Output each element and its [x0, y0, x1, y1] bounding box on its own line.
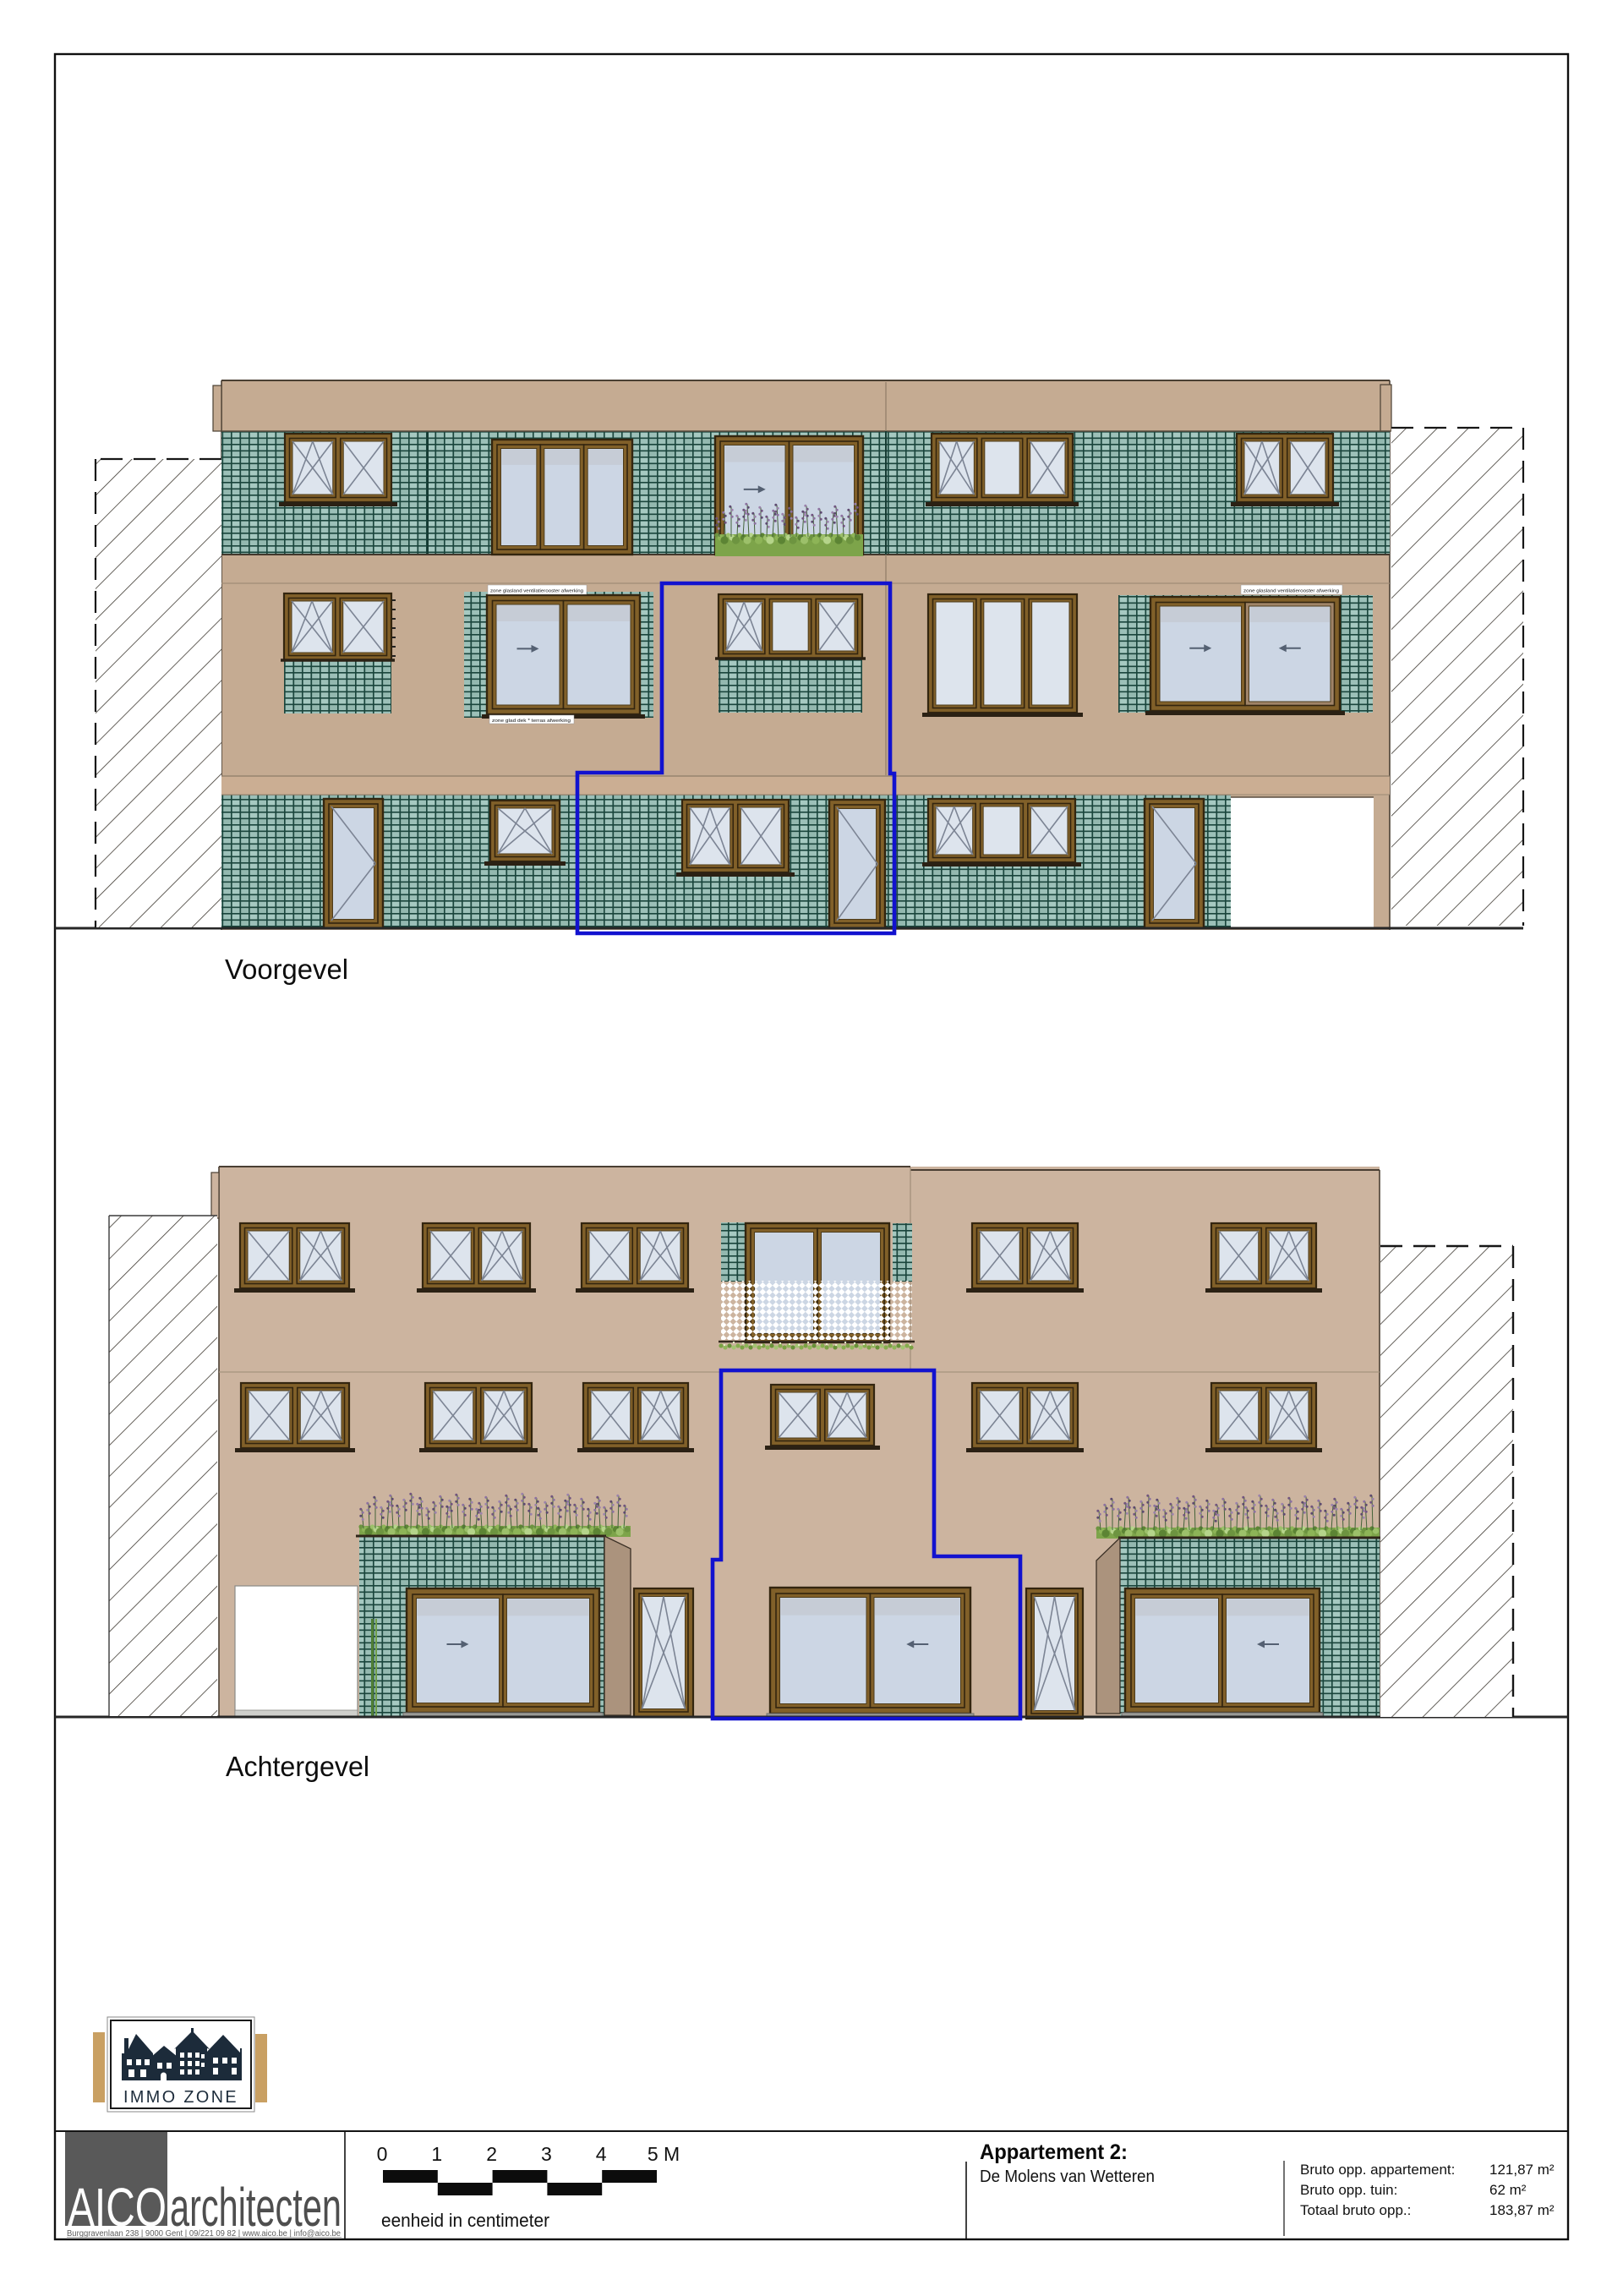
svg-text:Totaal bruto opp.:: Totaal bruto opp.:	[1300, 2202, 1411, 2218]
svg-text:183,87 m²: 183,87 m²	[1489, 2202, 1555, 2218]
svg-text:zone glasland ventilatierooste: zone glasland ventilatierooster afwerkin…	[1243, 589, 1339, 594]
svg-text:62 m²: 62 m²	[1489, 2182, 1527, 2198]
svg-text:zone glasland ventilatierooste: zone glasland ventilatierooster afwerkin…	[490, 589, 583, 594]
svg-text:Bruto opp. tuin:: Bruto opp. tuin:	[1300, 2182, 1397, 2198]
svg-text:2: 2	[486, 2143, 497, 2165]
svg-text:1: 1	[431, 2143, 442, 2165]
svg-text:Bruto opp. appartement:: Bruto opp. appartement:	[1300, 2162, 1455, 2178]
svg-text:Voorgevel: Voorgevel	[225, 954, 348, 985]
svg-text:4: 4	[596, 2143, 607, 2165]
svg-text:IMMO ZONE: IMMO ZONE	[123, 2087, 238, 2107]
svg-text:zone glad dek * terras afwerki: zone glad dek * terras afwerking	[492, 719, 571, 724]
svg-text:De Molens van Wetteren: De Molens van Wetteren	[980, 2168, 1155, 2186]
svg-text:3: 3	[541, 2143, 552, 2165]
svg-text:121,87 m²: 121,87 m²	[1489, 2162, 1555, 2178]
svg-text:eenheid in centimeter: eenheid in centimeter	[381, 2210, 549, 2231]
svg-text:5 M: 5 M	[648, 2143, 680, 2165]
svg-text:Appartement 2:: Appartement 2:	[980, 2140, 1128, 2164]
svg-text:0: 0	[377, 2143, 388, 2165]
svg-text:Achtergevel: Achtergevel	[226, 1751, 369, 1782]
